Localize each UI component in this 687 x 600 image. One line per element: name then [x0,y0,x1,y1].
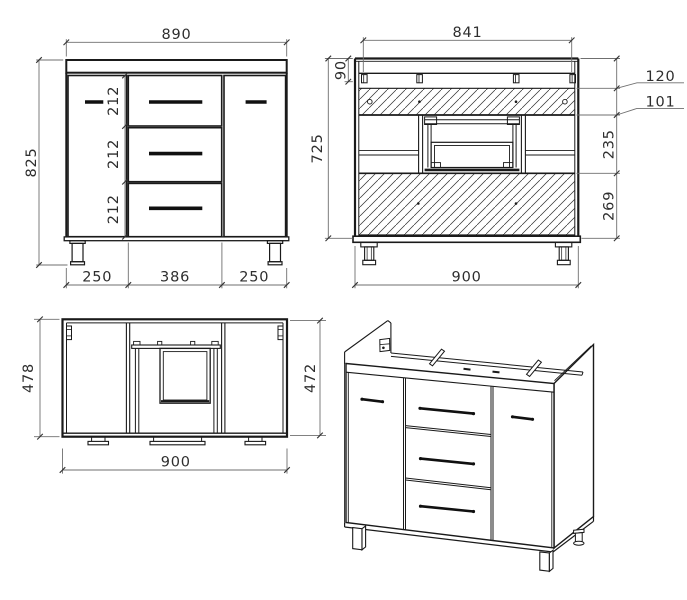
isometric-view [345,321,594,572]
back-view-base [353,236,580,264]
iso-front-left-leg [353,528,362,550]
front-view-legs [70,241,283,265]
technical-drawing-page: 890 825 212 212 212 250 386 250 [0,0,687,600]
front-dim-right-width: 250 [239,270,269,286]
back-dim-inner-width: 841 [452,25,482,41]
back-dim-overall-width: 900 [452,270,482,286]
front-dim-left-width: 250 [82,270,112,286]
top-view-feet-tabs [88,437,266,445]
top-dim-depth-right: 472 [303,363,319,393]
back-dim-top-offset: 90 [333,60,349,80]
right-door [224,76,286,237]
top-view-carcass [63,319,288,436]
back-dim-lower-panel: 269 [602,191,618,221]
mounting-clips [362,75,576,83]
front-dim-middle-width: 386 [160,270,190,286]
right-hinge [278,326,283,340]
sink-cutout-outer [160,348,210,403]
top-view-drawer-frame [132,341,221,433]
front-view-cabinet-outline [64,60,289,241]
front-dim-overall-width: 890 [161,27,191,43]
front-dim-drawer2-height: 212 [106,139,122,169]
top-dim-overall-width: 900 [161,455,191,471]
iso-divider-2 [527,360,542,376]
front-view: 890 825 212 212 212 250 386 250 [24,27,290,289]
left-hinge [67,326,72,340]
iso-front-right-leg [540,552,550,571]
iso-front-face [346,364,554,549]
upper-stretcher-hatched [359,88,575,115]
back-view: 841 90 725 120 101 235 269 900 [310,25,684,288]
iso-wall-bracket [380,338,390,351]
back-dim-middle-section: 235 [602,129,618,159]
sink-cutout-inner [163,352,207,400]
front-view-dimensions: 890 825 212 212 212 250 386 250 [24,27,290,289]
top-view: 478 472 900 [21,317,326,474]
front-dim-drawer3-height: 212 [106,194,122,224]
back-view-dimensions: 841 90 725 120 101 235 269 900 [310,25,684,288]
front-dim-drawer1-height: 212 [106,86,122,116]
drawing-canvas: 890 825 212 212 212 250 386 250 [0,0,687,600]
top-dim-depth-left: 478 [21,363,37,393]
front-dim-overall-height: 825 [24,147,40,177]
plinth-rail [64,237,289,241]
lower-panel-hatched [359,173,575,235]
back-dim-callout-101: 101 [645,94,675,110]
middle-section-drawer-assembly [359,115,575,173]
back-dim-carcass-height: 725 [310,133,326,163]
back-dim-callout-120: 120 [645,69,675,85]
